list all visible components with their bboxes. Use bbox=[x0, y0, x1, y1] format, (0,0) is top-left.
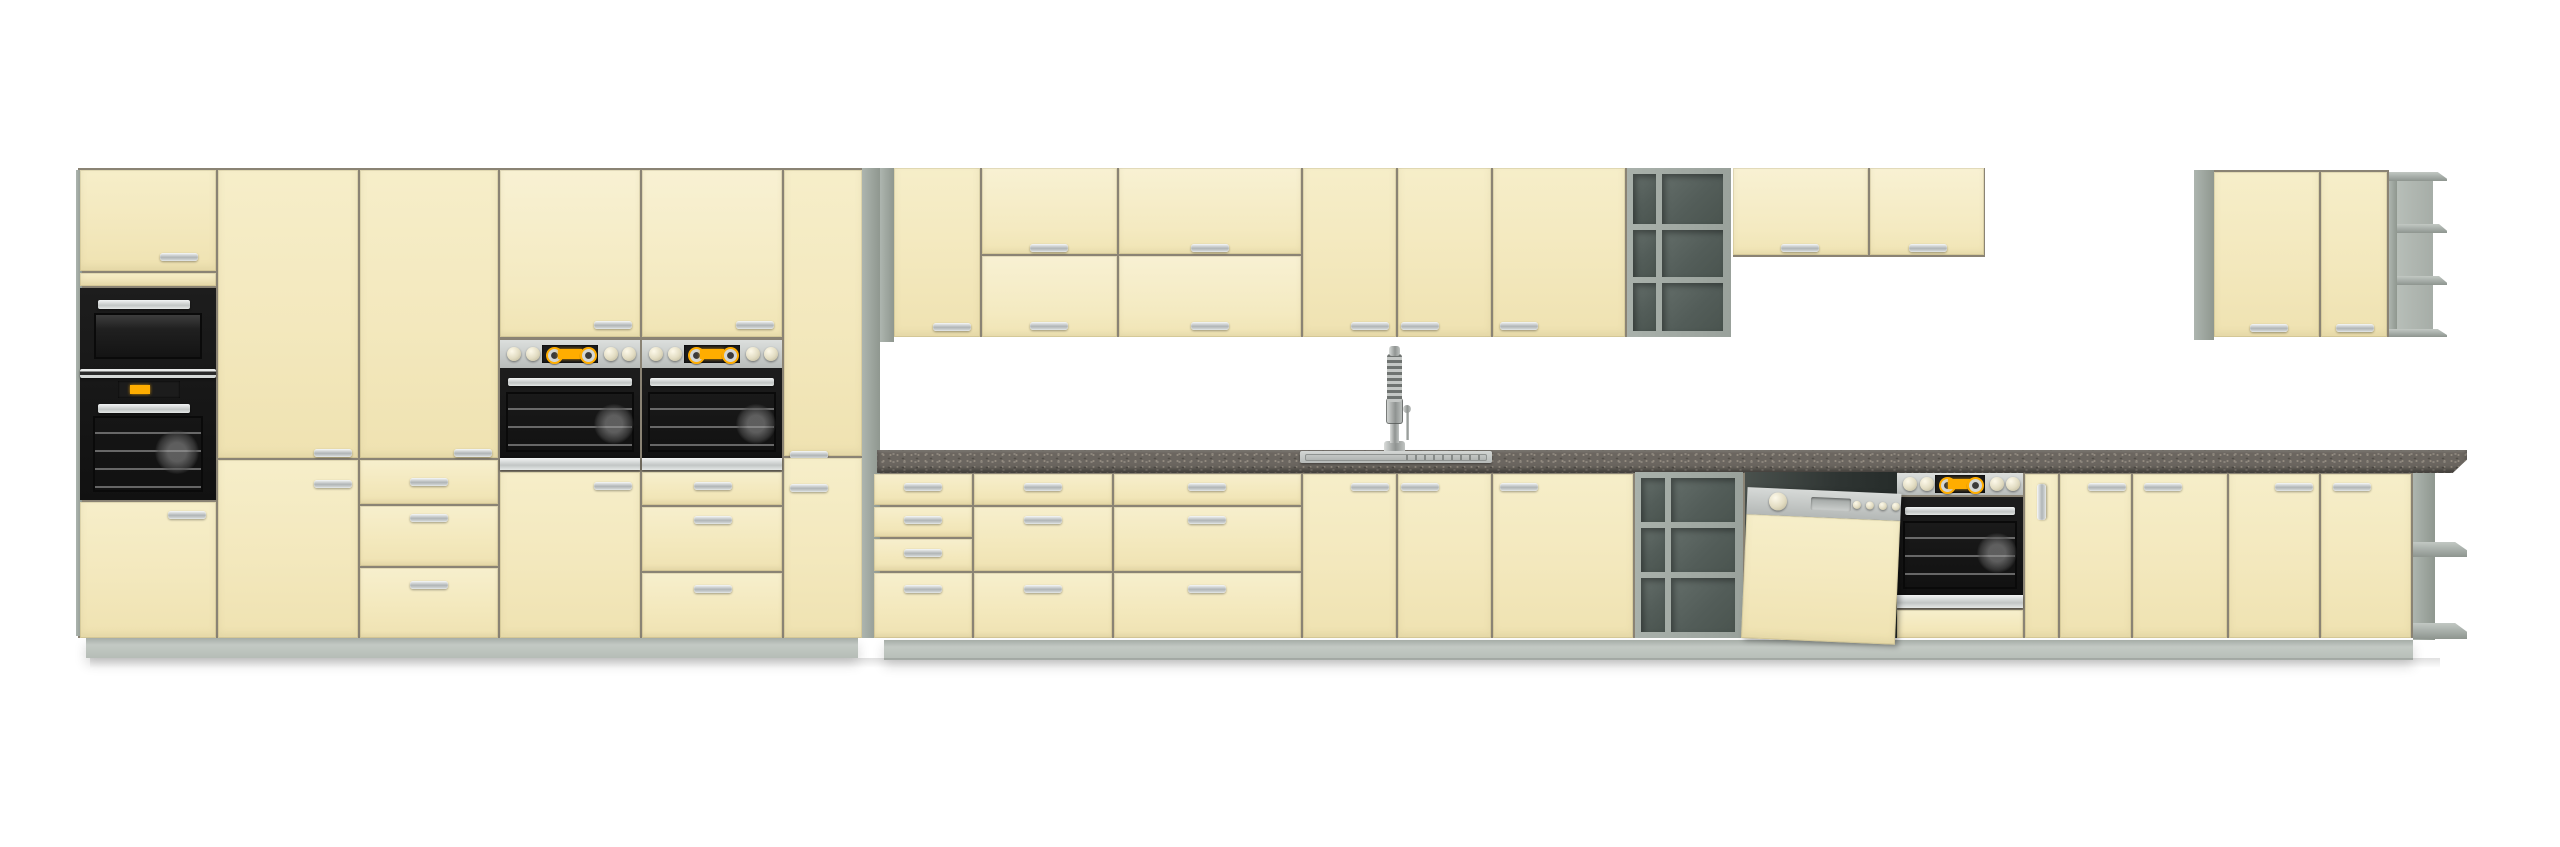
built-in-oven-1-display-readout bbox=[558, 349, 582, 359]
built-in-oven-2-knob-4 bbox=[764, 347, 778, 361]
base-drawer-unit-2-drawer-3-handle bbox=[1024, 585, 1062, 593]
oven-housing-2-drawer-3-handle bbox=[694, 585, 732, 593]
base-drawer-unit-3-drawer-2 bbox=[1114, 507, 1301, 571]
wall-cab-1-door-handle bbox=[933, 323, 971, 331]
built-in-oven-1-window bbox=[506, 392, 634, 452]
base-drawer-unit-1-drawer-3 bbox=[874, 539, 972, 571]
base-built-in-oven-knob-3 bbox=[1990, 477, 2004, 491]
built-in-oven-2-knob-1 bbox=[649, 347, 663, 361]
tall-pantry-1-lower-door bbox=[218, 460, 358, 638]
base-built-in-oven-base-strip bbox=[1897, 595, 2023, 608]
base-built-in-oven-handle-bar bbox=[1905, 507, 2015, 515]
built-in-oven-1-timer-knob-right bbox=[580, 347, 597, 364]
tall-pantry-2-drawer-1 bbox=[360, 460, 498, 504]
oven-housing-2-top-flap-handle bbox=[736, 321, 774, 329]
faucet-cap bbox=[1389, 346, 1400, 356]
base-corner-open-shelf-shelf-1 bbox=[2413, 542, 2467, 557]
wall-cab-4-door-handle bbox=[1351, 322, 1389, 330]
wall-cab-4-door bbox=[1303, 168, 1396, 337]
built-in-oven-2-window bbox=[648, 392, 776, 452]
oven-display-readout bbox=[130, 385, 150, 394]
base-drawer-unit-1-drawer-4-handle bbox=[904, 585, 942, 593]
wall-cab-1-door bbox=[894, 168, 980, 337]
sink-base-door-left bbox=[1303, 474, 1396, 638]
tall-pantry-2-drawer-1-handle bbox=[410, 478, 448, 486]
base-drawer-unit-2-drawer-3 bbox=[974, 573, 1112, 638]
wall-right-door-2-handle bbox=[2336, 324, 2374, 332]
tall-pantry-2-upper-door-handle bbox=[454, 449, 492, 457]
wall-corner-open-shelf-shelf-3 bbox=[2397, 276, 2447, 285]
appliance-divider bbox=[80, 369, 216, 378]
base-open-shelf-unit-cell-5 bbox=[1641, 578, 1665, 632]
wall-corner-open-shelf-shelf-4 bbox=[2389, 329, 2447, 337]
wall-cab-6-door bbox=[1493, 168, 1625, 337]
worktop bbox=[877, 450, 2467, 473]
base-door-cab-2-handle bbox=[2088, 483, 2126, 491]
oven-housing-1-bottom-door-handle bbox=[594, 482, 632, 490]
built-in-oven-1-door bbox=[500, 368, 640, 458]
built-in-oven-1-display-strip bbox=[542, 345, 598, 363]
base-run-plinth bbox=[884, 640, 2413, 660]
tall-pantry-2-drawer-2 bbox=[360, 506, 498, 566]
wall-corner-open-shelf-back bbox=[2397, 180, 2433, 330]
wall-right-door-1 bbox=[2214, 172, 2319, 337]
tall-oven-housing-filler bbox=[80, 273, 216, 286]
oven-housing-1-top-flap bbox=[500, 170, 640, 337]
base-door-cab-5 bbox=[2321, 474, 2411, 638]
sink-base-door-left-handle bbox=[1351, 483, 1389, 491]
built-in-oven-2-fan bbox=[736, 404, 776, 444]
wall-open-shelf-unit-cell-1 bbox=[1633, 174, 1656, 224]
wall-cab-3-bottom-flap bbox=[1119, 256, 1301, 337]
wall-cab-3-bottom-flap-handle bbox=[1191, 322, 1229, 330]
base-drawer-unit-3-drawer-3-handle bbox=[1188, 585, 1226, 593]
wall-corner-open-shelf-shelf-2 bbox=[2397, 224, 2447, 233]
sink-base-door-right bbox=[1398, 474, 1491, 638]
dishwasher-door bbox=[1741, 487, 1901, 645]
base-drawer-unit-3-drawer-1-handle bbox=[1188, 483, 1226, 491]
tall-pantry-1-upper-door bbox=[218, 170, 358, 458]
oven-window bbox=[93, 416, 203, 492]
built-in-oven-2-control-panel bbox=[642, 340, 782, 368]
built-in-oven-1-knob-2 bbox=[526, 347, 540, 361]
wall-open-shelf-unit bbox=[1627, 168, 1731, 337]
base-built-in-oven-knob-1 bbox=[1903, 477, 1917, 491]
tall-oven-housing-bottom-door-handle bbox=[168, 511, 206, 519]
base-drawer-unit-2-drawer-2 bbox=[974, 507, 1112, 571]
built-in-oven-1-fan bbox=[594, 404, 634, 444]
wall-open-shelf-unit-cell-6 bbox=[1662, 283, 1723, 331]
tall-pantry-2-drawer-3-handle bbox=[410, 581, 448, 589]
tall-pantry-1-upper-door-handle bbox=[314, 449, 352, 457]
base-narrow-door bbox=[2025, 474, 2058, 638]
base-drawer-unit-3-drawer-1 bbox=[1114, 474, 1301, 505]
base-door-cab-2 bbox=[2060, 474, 2131, 638]
built-in-oven-2-base-strip bbox=[642, 458, 782, 470]
wall-right-door-2 bbox=[2321, 172, 2387, 337]
base-open-shelf-unit bbox=[1635, 472, 1743, 638]
tall-pantry-2-drawer-2-handle bbox=[410, 514, 448, 522]
oven-housing-1-top-flap-handle bbox=[594, 321, 632, 329]
base-built-in-oven-fan bbox=[1977, 533, 2017, 573]
wall-open-shelf-unit-cell-4 bbox=[1662, 230, 1723, 277]
oven-housing-2-drawer-3 bbox=[642, 573, 782, 638]
wall-open-shelf-unit-cell-2 bbox=[1662, 174, 1723, 224]
built-in-oven-2-timer-knob-right bbox=[722, 347, 739, 364]
wall-cab-5-door-handle bbox=[1401, 322, 1439, 330]
base-built-in-oven-control-panel bbox=[1897, 473, 2023, 495]
tall-oven-housing-top-door-handle bbox=[160, 253, 198, 261]
wall-cab-6-door-handle bbox=[1500, 322, 1538, 330]
base-drawer-unit-1-drawer-1-handle bbox=[904, 483, 942, 491]
built-in-oven-1-knob-3 bbox=[604, 347, 618, 361]
base-built-in-oven-window bbox=[1903, 521, 2017, 589]
floor-shadow bbox=[90, 658, 2440, 668]
base-drawer-unit-1-drawer-2 bbox=[874, 507, 972, 537]
base-door-cab-1-handle bbox=[1500, 483, 1538, 491]
sink-drainer bbox=[1406, 455, 1483, 460]
wall-open-shelf-unit-cell-3 bbox=[1633, 230, 1656, 277]
wall-cab-2-top-flap-handle bbox=[1030, 244, 1068, 252]
microwave-window bbox=[94, 313, 202, 359]
base-drawer-unit-2-drawer-1 bbox=[974, 474, 1112, 505]
base-drawer-unit-1-drawer-1 bbox=[874, 474, 972, 505]
base-open-shelf-unit-cell-1 bbox=[1641, 478, 1665, 522]
wall-cab-8-flap bbox=[1870, 168, 1984, 255]
wall-cab-7-flap bbox=[1733, 168, 1868, 255]
microwave-handle-bar bbox=[98, 300, 190, 309]
base-open-shelf-unit-cell-3 bbox=[1641, 528, 1665, 572]
base-drawer-unit-1-drawer-2-handle bbox=[904, 516, 942, 524]
oven-housing-2-drawer-2 bbox=[642, 507, 782, 571]
tall-end-lower-door-handle bbox=[790, 484, 828, 492]
base-drawer-unit-2-drawer-2-handle bbox=[1024, 516, 1062, 524]
faucet-spring bbox=[1387, 354, 1402, 402]
built-in-oven-2-knob-3 bbox=[746, 347, 760, 361]
base-door-cab-3-handle bbox=[2144, 483, 2182, 491]
built-in-oven-1-knob-1 bbox=[507, 347, 521, 361]
oven-housing-1-bottom-door bbox=[500, 472, 640, 638]
base-built-in-oven-knob-2 bbox=[1920, 477, 1934, 491]
built-in-oven-2-display-strip bbox=[684, 345, 740, 363]
tall-pantry-2-drawer-3 bbox=[360, 568, 498, 638]
oven-housing-2-drawer-1-handle bbox=[694, 482, 732, 490]
built-in-oven-1-control-panel bbox=[500, 340, 640, 368]
sink-base-door-right-handle bbox=[1401, 483, 1439, 491]
wall-cab-5-door bbox=[1398, 168, 1491, 337]
wall-cab-3-top-flap-handle bbox=[1191, 244, 1229, 252]
base-built-in-oven-knob-4 bbox=[2006, 477, 2020, 491]
oven-handle-bar bbox=[98, 404, 190, 413]
tall-pantry-1-lower-door-handle bbox=[314, 480, 352, 488]
base-door-cab-1 bbox=[1493, 474, 1633, 638]
wall-cab-3-top-flap bbox=[1119, 168, 1301, 254]
oven-housing-2-top-flap bbox=[642, 170, 782, 337]
dishwasher-handle-recess bbox=[1811, 497, 1852, 512]
kitchen-cabinet-set-render bbox=[0, 0, 2560, 847]
base-drawer-unit-1-drawer-3-handle bbox=[904, 549, 942, 557]
base-door-cab-4 bbox=[2229, 474, 2319, 638]
wall-corner-open-shelf-post bbox=[2389, 172, 2397, 337]
wall-cab-2-bottom-flap bbox=[982, 256, 1117, 337]
wall-right-door-1-handle bbox=[2250, 324, 2288, 332]
tall-oven-housing-top-door bbox=[80, 170, 216, 271]
base-oven-bottom-drawer bbox=[1897, 610, 2023, 638]
oven-microwave-stack bbox=[80, 288, 216, 500]
built-in-oven-1-handle-bar bbox=[508, 378, 632, 386]
wall-cab-8-flap-handle bbox=[1909, 244, 1947, 252]
base-open-shelf-unit-cell-2 bbox=[1671, 478, 1735, 522]
base-built-in-oven-timer-knob-right bbox=[1967, 477, 1984, 494]
base-built-in-oven-door bbox=[1897, 497, 2023, 595]
sink bbox=[1300, 451, 1492, 463]
dishwasher-front-panel bbox=[1741, 514, 1900, 645]
tall-oven-housing-bottom-door bbox=[80, 502, 216, 638]
faucet-lever-ball bbox=[1403, 405, 1411, 413]
tall-units-plinth bbox=[86, 638, 858, 658]
base-drawer-unit-1-drawer-4 bbox=[874, 573, 972, 638]
wall-run-left-end-panel bbox=[880, 168, 894, 342]
built-in-oven-1-base-strip bbox=[500, 458, 640, 470]
built-in-oven-2-door bbox=[642, 368, 782, 458]
base-drawer-unit-3-drawer-2-handle bbox=[1188, 516, 1226, 524]
base-built-in-oven-display-strip bbox=[1935, 475, 1985, 493]
oven-housing-2-drawer-2-handle bbox=[694, 516, 732, 524]
tall-end-upper-door bbox=[784, 170, 862, 456]
wall-open-shelf-unit-cell-5 bbox=[1633, 283, 1656, 331]
tall-pantry-2-upper-door bbox=[360, 170, 498, 458]
wall-right-group-end-panel bbox=[2194, 170, 2214, 340]
tall-end-lower-door bbox=[784, 458, 862, 638]
built-in-oven-2-display-readout bbox=[700, 349, 724, 359]
built-in-oven-2-knob-2 bbox=[668, 347, 682, 361]
base-drawer-unit-2-drawer-1-handle bbox=[1024, 483, 1062, 491]
base-open-shelf-unit-cell-6 bbox=[1671, 578, 1735, 632]
base-door-cab-4-handle bbox=[2275, 483, 2313, 491]
faucet-lever-rod bbox=[1406, 411, 1409, 440]
built-in-oven-1-knob-4 bbox=[622, 347, 636, 361]
base-door-cab-5-handle bbox=[2333, 483, 2371, 491]
oven-fan bbox=[155, 430, 199, 474]
oven-housing-2-drawer-1 bbox=[642, 472, 782, 505]
wall-cab-2-top-flap bbox=[982, 168, 1117, 254]
wall-cab-7-flap-handle bbox=[1781, 244, 1819, 252]
base-open-shelf-unit-cell-4 bbox=[1671, 528, 1735, 572]
built-in-oven-2-handle-bar bbox=[650, 378, 774, 386]
base-drawer-unit-3-drawer-3 bbox=[1114, 573, 1301, 638]
base-corner-open-shelf-shelf-2 bbox=[2413, 623, 2467, 639]
base-door-cab-3 bbox=[2133, 474, 2227, 638]
wall-corner-open-shelf-shelf-1 bbox=[2389, 172, 2447, 181]
base-narrow-door-handle bbox=[2037, 484, 2046, 520]
wall-cab-2-bottom-flap-handle bbox=[1030, 322, 1068, 330]
